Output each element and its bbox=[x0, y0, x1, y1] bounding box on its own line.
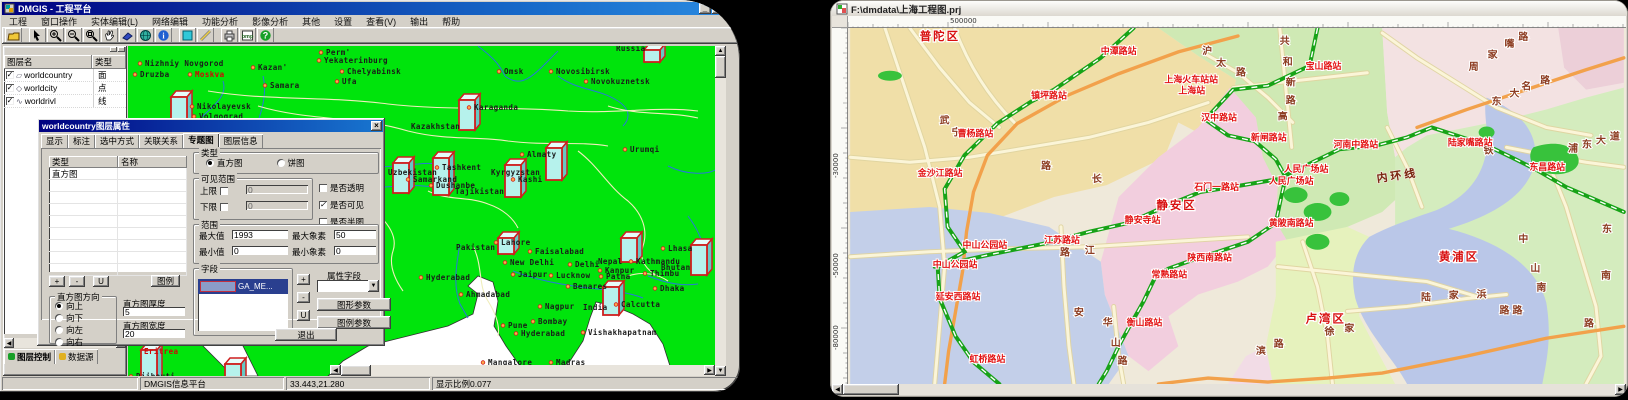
layer-name-column-header[interactable]: 图层名 bbox=[4, 55, 92, 69]
city-label: Nagpur bbox=[545, 302, 575, 311]
min-pixel-field[interactable] bbox=[334, 246, 376, 255]
svg-text:?: ? bbox=[263, 31, 269, 41]
scroll-up-icon[interactable]: ▲ bbox=[715, 46, 726, 56]
dialog-tab-关联关系[interactable]: 关联关系 bbox=[139, 134, 183, 148]
chevron-down-icon[interactable]: ▼ bbox=[368, 280, 379, 292]
road-name-char: 东 bbox=[1582, 137, 1592, 150]
city-label: Djibouti bbox=[136, 372, 175, 376]
shanghai-map-view[interactable]: 沪太路共和新路高周家嘴路东大名路浦东大道东南路中山南路陆家浜路铁武宁长路安华山路… bbox=[848, 28, 1626, 384]
lower-limit-checkbox[interactable]: 下限 bbox=[200, 201, 228, 213]
city-dot bbox=[549, 274, 553, 278]
update-button[interactable]: U bbox=[93, 276, 109, 287]
layer-row[interactable]: ✓◇worldcity点 bbox=[4, 82, 126, 95]
city-label: Novosibirsk bbox=[556, 67, 610, 76]
road-name-char: 道 bbox=[1610, 129, 1620, 142]
menu-网络编辑[interactable]: 网络编辑 bbox=[145, 15, 195, 28]
panel-tabs: 图层控制数据源 bbox=[4, 349, 126, 364]
direction-radio-向右[interactable]: 向右 bbox=[55, 336, 83, 348]
station-label: 黄陂南路站 bbox=[1269, 217, 1314, 228]
city-dot bbox=[497, 70, 501, 74]
thematic-list[interactable]: 类型 名称 直方图 bbox=[49, 156, 187, 272]
status-scale: 显示比例0.077 bbox=[432, 377, 738, 390]
station-label: 人民广场站 bbox=[1284, 163, 1329, 174]
layer-type: 面 bbox=[93, 69, 126, 81]
road-name-char: 高 bbox=[1278, 109, 1288, 122]
min-pixel-label: 最小象素 bbox=[292, 246, 326, 258]
city-label: Moskva bbox=[195, 70, 225, 79]
menu-窗口操作[interactable]: 窗口操作 bbox=[34, 15, 84, 28]
city-dot bbox=[511, 273, 515, 277]
road-name-char: 和 bbox=[1282, 55, 1293, 68]
list-row-type[interactable]: 直方图 bbox=[49, 168, 118, 179]
window-title: DMGIS - 工程平台 bbox=[18, 2, 92, 15]
district-label: 静安区 bbox=[1156, 198, 1196, 212]
line-icon: ∿ bbox=[16, 97, 23, 106]
menu-工程[interactable]: 工程 bbox=[2, 15, 34, 28]
station-label: 河南中路站 bbox=[1333, 138, 1378, 149]
menu-功能分析[interactable]: 功能分析 bbox=[195, 15, 245, 28]
road-name-char: 家 bbox=[1488, 48, 1498, 61]
list-name-header[interactable]: 名称 bbox=[118, 156, 187, 168]
station-label: 陕西南路站 bbox=[1187, 252, 1232, 263]
road-name-char: 路 bbox=[1236, 66, 1247, 79]
station-label: 汉中路站 bbox=[1201, 111, 1237, 122]
city-label: Urumqi bbox=[630, 145, 660, 154]
type-radio-饼图[interactable]: 饼图 bbox=[277, 157, 305, 169]
city-dot bbox=[531, 320, 535, 324]
city-label: Pakistan bbox=[456, 243, 495, 252]
direction-radio-向下[interactable]: 向下 bbox=[55, 312, 83, 324]
station-label: 中山公园站 bbox=[933, 259, 978, 270]
max-pixel-label: 最大象素 bbox=[292, 230, 326, 242]
city-dot bbox=[549, 361, 553, 365]
app-icon bbox=[4, 3, 15, 14]
panel-close-icon[interactable] bbox=[118, 47, 125, 52]
road-name-char: 东 bbox=[1492, 95, 1502, 108]
road-name-char: 沪 bbox=[1202, 44, 1212, 57]
road-name-char: 华 bbox=[1103, 315, 1113, 328]
zoom-window-icon[interactable] bbox=[83, 28, 100, 43]
layers-icon bbox=[8, 353, 15, 360]
city-dot bbox=[188, 73, 192, 77]
map-horizontal-scrollbar[interactable]: ◀ ▶ bbox=[330, 365, 715, 376]
layer-type: 线 bbox=[93, 95, 126, 107]
min-label: 最小值 bbox=[199, 246, 225, 258]
thematic-column bbox=[691, 239, 712, 275]
scroll-left-icon[interactable]: ◀ bbox=[330, 365, 341, 375]
help-icon[interactable]: ? bbox=[257, 28, 274, 43]
road-name-char: 路 bbox=[1540, 74, 1551, 87]
dialog-title-bar[interactable]: worldcountry图层属性 × bbox=[39, 120, 383, 132]
list-type-header[interactable]: 类型 bbox=[49, 156, 118, 168]
city-dot bbox=[419, 276, 423, 280]
layer-name: worldrivl bbox=[25, 96, 56, 106]
title-bar[interactable]: DMGIS - 工程平台 _ □ bbox=[2, 2, 738, 15]
menu-输出[interactable]: 输出 bbox=[403, 15, 435, 28]
city-dot bbox=[661, 247, 665, 251]
city-label: Druzba bbox=[140, 70, 170, 79]
city-dot bbox=[335, 80, 339, 84]
field-group: 字段 GA_ME... bbox=[193, 268, 293, 336]
station-label: 金沙江路站 bbox=[917, 167, 963, 178]
road-name-char: 路 bbox=[1274, 337, 1285, 350]
visible-range-group: 可见范围 上限 下限 bbox=[193, 178, 313, 220]
city-label: Kashi bbox=[518, 175, 543, 184]
menu-影像分析[interactable]: 影像分析 bbox=[245, 15, 295, 28]
add-button[interactable]: + bbox=[49, 276, 65, 287]
checkbox-是否透明[interactable]: 是否透明 bbox=[319, 182, 364, 194]
city-dot bbox=[494, 241, 498, 245]
bar-width-field[interactable] bbox=[123, 329, 185, 338]
city-label: Dhaka bbox=[660, 284, 685, 293]
svg-text:bmp: bmp bbox=[242, 34, 254, 40]
city-label: Calcutta bbox=[621, 300, 660, 309]
station-label: 陆家嘴路站 bbox=[1448, 136, 1493, 147]
panel-tab-图层控制[interactable]: 图层控制 bbox=[4, 349, 55, 364]
field-update-button[interactable]: U bbox=[297, 310, 310, 321]
road-name-char: 周 bbox=[1469, 61, 1479, 73]
city-label: Lahore bbox=[501, 238, 531, 247]
city-label: Delhi bbox=[575, 260, 600, 269]
city-dot bbox=[429, 184, 433, 188]
thematic-column bbox=[546, 142, 567, 180]
district-label: 卢湾区 bbox=[1306, 311, 1346, 325]
road-name-char: 大 bbox=[1596, 133, 1606, 146]
pan-hand-icon[interactable] bbox=[101, 28, 118, 43]
selected-field[interactable]: GA_ME... bbox=[198, 279, 288, 294]
city-label: Eritrea bbox=[144, 347, 178, 356]
upper-limit-checkbox[interactable]: 上限 bbox=[200, 185, 228, 197]
city-dot bbox=[599, 275, 603, 279]
road-name-char: 山 bbox=[1111, 336, 1121, 349]
print-icon[interactable] bbox=[221, 28, 238, 43]
panel-pin-icon[interactable] bbox=[110, 47, 117, 52]
thematic-column bbox=[459, 94, 480, 130]
city-label: Benares bbox=[573, 282, 607, 291]
scroll-left-icon[interactable]: ◀ bbox=[832, 384, 843, 395]
city-dot bbox=[467, 106, 471, 110]
city-dot bbox=[138, 62, 142, 66]
dialog-tab-图层信息[interactable]: 图层信息 bbox=[219, 134, 263, 148]
type-group: 类型 直方图饼图 bbox=[193, 152, 379, 174]
city-dot bbox=[503, 261, 507, 265]
city-label: New Delhi bbox=[510, 258, 554, 267]
city-dot bbox=[538, 305, 542, 309]
layer-properties-dialog: worldcountry图层属性 × 显示标注选中方式关联关系专题图图层信息 类… bbox=[37, 118, 385, 346]
road-name-char: 安 bbox=[1074, 305, 1084, 318]
road-name-char: 太 bbox=[1215, 56, 1226, 69]
city-dot bbox=[643, 272, 647, 276]
dialog-tab-选中方式[interactable]: 选中方式 bbox=[95, 134, 139, 148]
exit-button[interactable]: 退出 bbox=[275, 328, 337, 341]
station-label: 虹桥路站 bbox=[970, 353, 1006, 364]
station-label: 曹杨路站 bbox=[958, 127, 994, 138]
field-color-swatch bbox=[200, 281, 236, 292]
type-radio-直方图[interactable]: 直方图 bbox=[206, 157, 243, 169]
legend-button[interactable]: 图例 bbox=[151, 275, 180, 287]
city-dot bbox=[317, 59, 321, 63]
layer-row[interactable]: ✓▱worldcountry面 bbox=[4, 69, 126, 82]
ruler-corner bbox=[832, 16, 848, 28]
station-label: 中山公园站 bbox=[963, 239, 1008, 250]
station-label: 镇坪路站 bbox=[1031, 90, 1067, 101]
city-label: Nikolayevsk bbox=[197, 102, 251, 111]
city-dot bbox=[190, 105, 194, 109]
station-label: 宝山路站 bbox=[1306, 60, 1342, 71]
road-name-char: 路 bbox=[1060, 246, 1071, 259]
city-dot bbox=[528, 250, 532, 254]
district-label: 普陀区 bbox=[920, 29, 960, 43]
road-name-char: 长 bbox=[1092, 172, 1102, 185]
city-dot bbox=[459, 293, 463, 297]
desktop: DMGIS - 工程平台 _ □ 工程窗口操作实体编辑(L)网络编辑功能分析影像… bbox=[0, 0, 1628, 400]
city-label: Vishakhapatnam bbox=[588, 328, 657, 337]
road-name-char: 路 bbox=[1518, 30, 1529, 43]
road-name-char: 南 bbox=[1601, 269, 1611, 282]
city-label: Karaganda bbox=[474, 103, 518, 112]
ruler-label: -50000 bbox=[832, 253, 840, 278]
horizontal-scrollbar[interactable]: ◀ ▶ bbox=[832, 384, 1626, 395]
attribute-field-combobox[interactable]: ▼ bbox=[317, 280, 379, 292]
menu-查看(V)[interactable]: 查看(V) bbox=[359, 15, 403, 28]
city-dot bbox=[584, 80, 588, 84]
road-name-char: 家 bbox=[1449, 288, 1459, 301]
direction-radio-向左[interactable]: 向左 bbox=[55, 324, 83, 336]
city-label: Jaipur bbox=[518, 270, 548, 279]
map-vertical-scrollbar[interactable]: ▲ ▼ bbox=[715, 46, 726, 376]
point-icon: ◇ bbox=[16, 84, 22, 93]
road-name-char: 家 bbox=[1344, 321, 1354, 334]
city-dot bbox=[623, 148, 627, 152]
city-label: Almaty bbox=[527, 150, 557, 159]
thickness-field[interactable] bbox=[123, 307, 185, 316]
max-pixel-field[interactable] bbox=[334, 230, 376, 239]
menu-实体编辑(L)[interactable]: 实体编辑(L) bbox=[84, 15, 145, 28]
ruler-label: -30000 bbox=[832, 153, 840, 178]
city-label: Hyderabad bbox=[426, 273, 470, 282]
shanghai-map[interactable]: 沪太路共和新路高周家嘴路东大名路浦东大道东南路中山南路陆家浜路铁武宁长路安华山路… bbox=[848, 28, 1626, 384]
city-label: Lhasa bbox=[668, 244, 693, 253]
direction-group: 直方图方向 向上向下向左向右 bbox=[49, 296, 117, 344]
road-name-char: 山 bbox=[1530, 262, 1540, 275]
upper-limit-field[interactable] bbox=[246, 185, 308, 194]
max-label: 最大值 bbox=[199, 230, 225, 242]
road-name-char: 南 bbox=[1536, 281, 1546, 294]
road-name-char: 路 bbox=[1584, 316, 1595, 329]
city-dot bbox=[251, 66, 255, 70]
max-value-field[interactable] bbox=[232, 230, 288, 239]
city-dot bbox=[511, 178, 515, 182]
station-label: 延安西路站 bbox=[935, 290, 981, 301]
station-label: 衡山路站 bbox=[1127, 316, 1163, 327]
field-remove-button[interactable]: - bbox=[297, 292, 310, 303]
city-label: Tajikistan bbox=[455, 187, 504, 196]
road-name-char: 浜 bbox=[1477, 287, 1487, 300]
station-label: 常熟路站 bbox=[1151, 269, 1187, 280]
close-icon[interactable]: × bbox=[371, 121, 382, 131]
station-label: 新闸路站 bbox=[1251, 131, 1287, 142]
thematic-column bbox=[225, 358, 246, 376]
layer-name: worldcity bbox=[24, 83, 57, 93]
road-name-char: 徐 bbox=[1324, 324, 1335, 337]
station-label: 静安寺站 bbox=[1125, 214, 1161, 225]
city-label: Russia bbox=[616, 46, 646, 53]
scroll-left-icon[interactable]: ◀ bbox=[4, 338, 14, 348]
city-label: Nizhniy Novgorod bbox=[145, 59, 224, 68]
menu-设置[interactable]: 设置 bbox=[327, 15, 359, 28]
city-dot bbox=[133, 73, 137, 77]
toolbar: ibmp? bbox=[2, 27, 738, 44]
road-name-char: 江 bbox=[1085, 244, 1095, 257]
station-label: 上海站 bbox=[1178, 85, 1205, 96]
station-label: 东昌路站 bbox=[1529, 161, 1565, 172]
status-coordinates: 33.443,21.280 bbox=[286, 377, 430, 390]
road-name-char: 路 bbox=[1041, 159, 1052, 172]
road-name-char: 陆 bbox=[1421, 290, 1431, 303]
zoom-in-icon[interactable] bbox=[47, 28, 64, 43]
panel-tab-数据源[interactable]: 数据源 bbox=[55, 349, 98, 364]
layer-row[interactable]: ✓∿worldrivl线 bbox=[4, 95, 126, 108]
layer-type-column-header[interactable]: 类型 bbox=[92, 55, 126, 69]
city-label: Novokuznetsk bbox=[591, 77, 650, 86]
city-dot bbox=[549, 70, 553, 74]
road-name-char: 名 bbox=[1521, 80, 1531, 93]
dialog-tab-显示[interactable]: 显示 bbox=[41, 134, 68, 148]
min-value-field[interactable] bbox=[232, 246, 288, 255]
scroll-down-icon[interactable]: ▼ bbox=[715, 366, 726, 376]
minimize-button[interactable]: _ bbox=[699, 3, 711, 14]
city-label: Hyderabad bbox=[521, 329, 565, 338]
station-label: 石门一路站 bbox=[1193, 181, 1239, 192]
shanghai-map-window: F:\dmdata\上海工程图.prj 500000 -30000-50000-… bbox=[830, 0, 1628, 397]
ruler-label: -80000 bbox=[832, 325, 840, 350]
road-name-char: 大 bbox=[1509, 87, 1519, 100]
city-dot bbox=[614, 303, 618, 307]
city-label: Kazan' bbox=[258, 63, 288, 72]
measure-pencil-icon[interactable] bbox=[197, 28, 214, 43]
station-label: 人民广场站 bbox=[1269, 175, 1314, 186]
city-dot bbox=[514, 332, 518, 336]
district-label: 黄浦区 bbox=[1439, 250, 1479, 264]
dialog-tab-标注[interactable]: 标注 bbox=[68, 134, 95, 148]
city-label: Ahmadabad bbox=[466, 290, 510, 299]
road-name-char: 路 bbox=[1118, 354, 1129, 367]
maximize-button[interactable]: □ bbox=[712, 3, 724, 14]
menu-bar: 工程窗口操作实体编辑(L)网络编辑功能分析影像分析其他设置查看(V)输出帮助 bbox=[2, 15, 738, 27]
field-add-button[interactable]: + bbox=[297, 274, 310, 285]
layer-checkbox[interactable]: ✓ bbox=[6, 71, 14, 79]
road-name-char: 嘴 bbox=[1504, 37, 1514, 50]
dmgis-window: DMGIS - 工程平台 _ □ 工程窗口操作实体编辑(L)网络编辑功能分析影像… bbox=[0, 0, 740, 392]
city-label: Kathmandu bbox=[636, 257, 680, 266]
menu-帮助[interactable]: 帮助 bbox=[435, 15, 467, 28]
layer-name: worldcountry bbox=[24, 70, 72, 80]
info-icon[interactable]: i bbox=[155, 28, 172, 43]
dialog-body: 类型 名称 直方图 + - U 图例 bbox=[41, 148, 381, 320]
road-name-char: 武 bbox=[940, 113, 950, 126]
city-label: Chelyabinsk bbox=[347, 67, 401, 76]
road-name-char: 滨 bbox=[1256, 344, 1266, 357]
dialog-title: worldcountry图层属性 bbox=[42, 120, 130, 132]
layer-type: 点 bbox=[93, 82, 126, 94]
city-dot bbox=[263, 84, 267, 88]
road-name-char: 新 bbox=[1286, 76, 1296, 89]
layer-checkbox[interactable]: ✓ bbox=[6, 84, 14, 92]
window-title: F:\dmdata\上海工程图.prj bbox=[851, 2, 961, 16]
city-label: Yekaterinburg bbox=[324, 56, 388, 65]
road-name-char: 路 bbox=[1500, 303, 1511, 316]
city-label: Ufa bbox=[342, 77, 357, 86]
city-label: Nepal bbox=[598, 257, 623, 266]
city-label: Samara bbox=[270, 81, 300, 90]
eraser-wedge-icon[interactable] bbox=[119, 28, 136, 43]
title-bar[interactable]: F:\dmdata\上海工程图.prj bbox=[831, 1, 1627, 16]
layer-checkbox[interactable]: ✓ bbox=[6, 97, 14, 105]
road-name-char: 浦 bbox=[1568, 141, 1578, 154]
station-label: 江苏路站 bbox=[1044, 234, 1080, 245]
scroll-right-icon[interactable]: ▶ bbox=[704, 365, 715, 375]
thematic-column bbox=[644, 46, 665, 62]
city-dot bbox=[129, 375, 133, 376]
status-app: DMGIS信息平台 bbox=[140, 377, 284, 390]
city-label: Kazakhstan bbox=[411, 122, 460, 131]
city-label: India bbox=[583, 303, 608, 312]
city-dot bbox=[566, 285, 570, 289]
city-dot bbox=[520, 153, 524, 157]
city-dot bbox=[340, 70, 344, 74]
open-folder-icon[interactable] bbox=[5, 28, 22, 43]
vertical-ruler: -30000-50000-80000 bbox=[832, 28, 848, 384]
zoom-out-icon[interactable] bbox=[65, 28, 82, 43]
globe-icon[interactable] bbox=[137, 28, 154, 43]
city-dot bbox=[653, 287, 657, 291]
field-list[interactable]: GA_ME... bbox=[198, 279, 288, 331]
polygon-icon: ▱ bbox=[16, 71, 22, 80]
city-label: Patna bbox=[606, 272, 631, 281]
city-dot bbox=[501, 324, 505, 328]
city-dot bbox=[568, 263, 572, 267]
status-blank bbox=[2, 377, 138, 390]
road-name-char: 东 bbox=[1602, 222, 1612, 235]
city-label: Bombay bbox=[538, 317, 568, 326]
lower-limit-field[interactable] bbox=[246, 201, 308, 210]
graphic-params-button[interactable]: 图形参数 bbox=[317, 298, 391, 311]
scroll-right-icon[interactable]: ▶ bbox=[1615, 384, 1626, 395]
status-bar: DMGIS信息平台 33.443,21.280 显示比例0.077 bbox=[2, 377, 738, 390]
road-name-char: 路 bbox=[1512, 303, 1523, 316]
datasource-icon bbox=[59, 353, 66, 360]
road-name-char: 共 bbox=[1280, 34, 1290, 47]
checkbox-是否可见[interactable]: ✓是否可见 bbox=[319, 199, 364, 211]
city-label: Tashkent bbox=[442, 163, 481, 172]
menu-其他[interactable]: 其他 bbox=[295, 15, 327, 28]
city-dot bbox=[406, 178, 410, 182]
range-group: 范围 最大值 最大象素 最小值 最小象素 bbox=[193, 224, 379, 264]
city-label: Omsk bbox=[504, 67, 524, 76]
remove-button[interactable]: - bbox=[69, 276, 85, 287]
direction-radio-向上[interactable]: 向上 bbox=[55, 300, 83, 312]
select-arrow-icon[interactable] bbox=[29, 28, 46, 43]
city-label: Thimbu bbox=[650, 269, 680, 278]
city-dot bbox=[581, 331, 585, 335]
city-label: Uzbekistan bbox=[388, 168, 437, 177]
ruler-label: 500000 bbox=[950, 17, 977, 25]
horizontal-ruler: 500000 bbox=[848, 16, 1626, 28]
station-label: 上海火车站站 bbox=[1164, 74, 1218, 85]
map-file-icon bbox=[836, 3, 848, 15]
fill-rect-icon[interactable] bbox=[179, 28, 196, 43]
export-bmp-icon[interactable]: bmp bbox=[239, 28, 256, 43]
